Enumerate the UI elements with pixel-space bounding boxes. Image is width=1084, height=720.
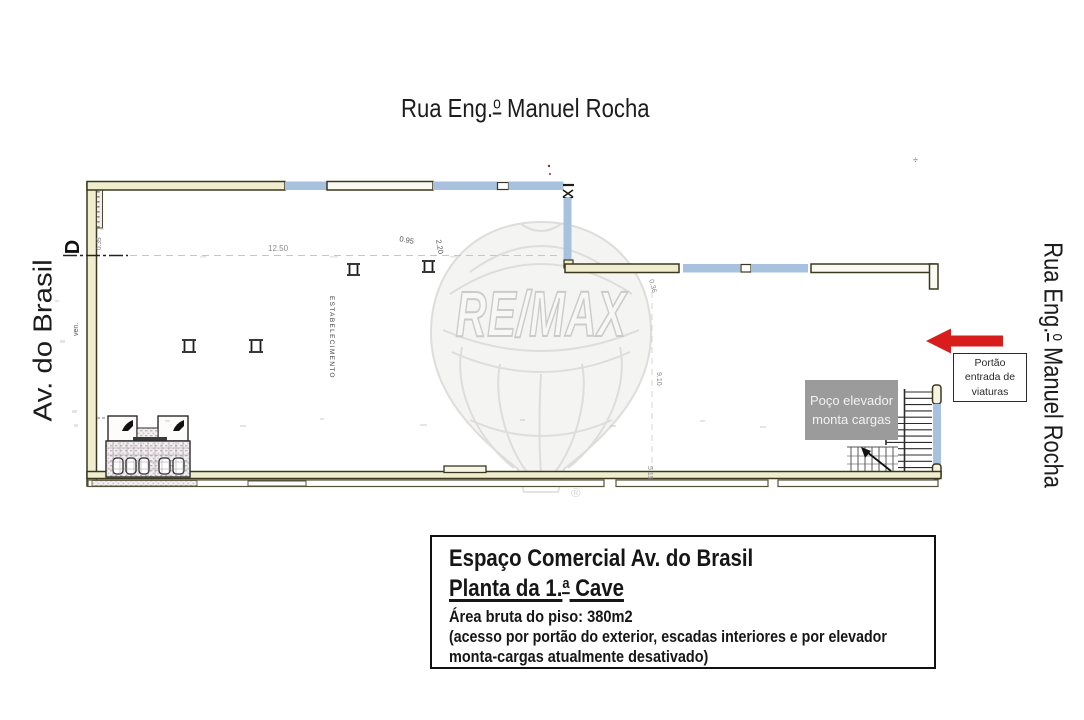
svg-text:÷: ÷ <box>913 155 918 165</box>
svg-text:12.50: 12.50 <box>268 244 289 253</box>
svg-text:0.35: 0.35 <box>96 237 103 250</box>
svg-text:0.95: 0.95 <box>399 234 415 246</box>
svg-text:0.36: 0.36 <box>647 279 657 294</box>
svg-text:RE/MAX: RE/MAX <box>456 278 629 350</box>
svg-text:2.20: 2.20 <box>434 239 445 255</box>
svg-text:ven.: ven. <box>73 323 80 336</box>
svg-text:ESTABELECIMENTO: ESTABELECIMENTO <box>328 296 335 379</box>
svg-text:9.10: 9.10 <box>655 372 662 386</box>
svg-text:5.15: 5.15 <box>646 466 653 480</box>
svg-text:D: D <box>62 240 84 254</box>
svg-text:®: ® <box>571 485 581 500</box>
